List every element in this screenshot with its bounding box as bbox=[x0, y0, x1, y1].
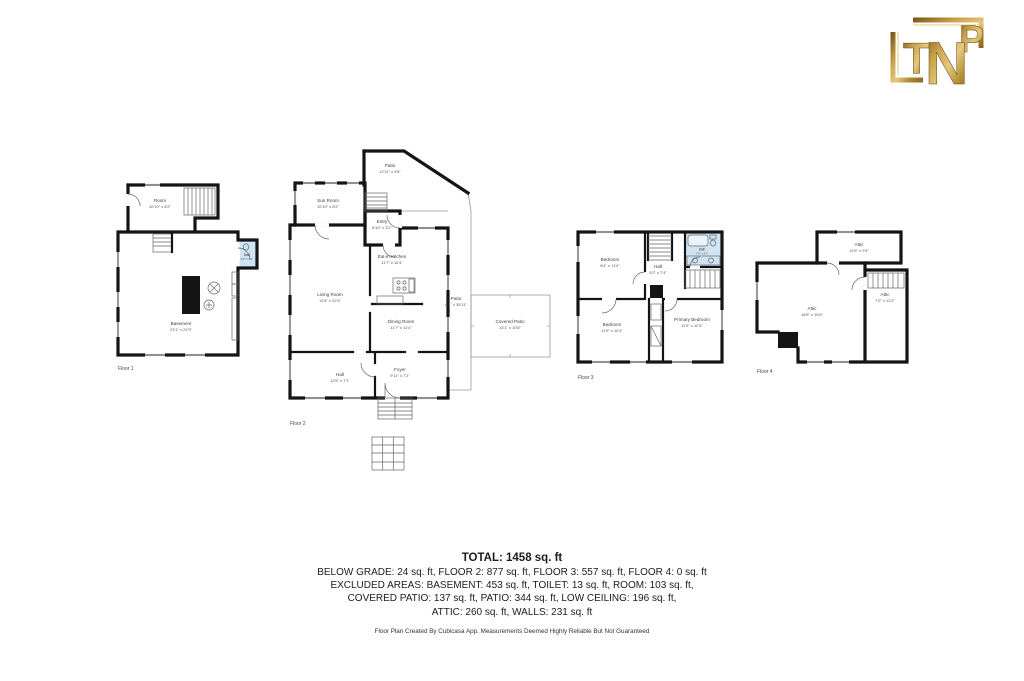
room-name-label: Bedroom bbox=[601, 257, 620, 262]
room-dims-label: 12'5" x 7'1" bbox=[330, 378, 350, 383]
hall-closets bbox=[651, 304, 661, 346]
floor-1-plan: Room 10'10" x 8'2" Bath 3'4" x 4'1" Base… bbox=[115, 172, 265, 377]
area-summary-line: BELOW GRADE: 24 sq. ft, FLOOR 2: 877 sq.… bbox=[0, 566, 1024, 579]
area-summary-line: EXCLUDED AREAS: BASEMENT: 453 sq. ft, TO… bbox=[0, 579, 1024, 592]
room-dims-label: 7'0" x 12'2" bbox=[875, 298, 895, 303]
area-summary-line: ATTIC: 260 sq. ft, WALLS: 231 sq. ft bbox=[0, 606, 1024, 619]
room-dims-label: 8'4" x 11'4" bbox=[600, 263, 620, 268]
room-dims-label: 11'7" x 10'4" bbox=[381, 260, 403, 265]
room-name-label: Basement bbox=[171, 321, 192, 326]
chimney-block bbox=[650, 285, 663, 298]
floor-label: Floor 3 bbox=[578, 375, 594, 381]
room-name-label: Eat-in Kitchen bbox=[378, 254, 407, 259]
room-name-label: Attic bbox=[881, 292, 891, 297]
chimney-block bbox=[778, 332, 798, 348]
logo-letter-n: N bbox=[925, 30, 968, 94]
room-name-label: Attic bbox=[808, 306, 818, 311]
room-name-label: Room bbox=[154, 198, 166, 203]
kitchen-appliances-icon bbox=[377, 278, 415, 304]
floor-2-walls bbox=[290, 151, 468, 398]
floor-4-plan: Attic 14'5" x 9'4" Attic 18'8" x 16'6" A… bbox=[752, 222, 910, 380]
floor-2-patio-outline bbox=[364, 185, 550, 390]
floor-label: Floor 4 bbox=[757, 369, 773, 375]
room-name-label: Patio bbox=[385, 163, 396, 168]
room-name-label: Living Room bbox=[317, 292, 343, 297]
room-dims-label: 11'7" x 11'4" bbox=[390, 325, 412, 330]
room-dims-label: 13'4" x 22'4" bbox=[319, 298, 342, 303]
room-name-label: Bedroom bbox=[603, 322, 622, 327]
floor-1-door-arcs bbox=[128, 194, 250, 260]
floor-3-plan: Bedroom 8'4" x 11'4" Hall 9'2" x 7'4" Ba… bbox=[572, 222, 730, 387]
room-dims-label: 6'1" x 39'11" bbox=[445, 302, 467, 307]
floor-4-stairs-icon bbox=[868, 273, 904, 288]
room-dims-label: 10'10" x 8'2" bbox=[149, 204, 172, 209]
room-dims-label: 14'5" x 9'4" bbox=[849, 248, 869, 253]
tnp-logo: T P N bbox=[883, 10, 1001, 94]
room-dims-label: 13'1" x 10'6" bbox=[499, 325, 522, 330]
floor-label: Floor 2 bbox=[290, 421, 306, 427]
room-dims-label: 10'10" x 8'2" bbox=[317, 204, 340, 209]
floor-4-door-arcs bbox=[827, 263, 865, 290]
room-dims-label: 9'11" x 7'2" bbox=[390, 373, 410, 378]
room-name-label: Patio bbox=[451, 296, 462, 301]
total-area-label: TOTAL: 1458 sq. ft bbox=[0, 552, 1024, 564]
room-name-label: Hall bbox=[654, 264, 662, 269]
room-dims-label: 12'11" x 9'8" bbox=[379, 169, 401, 174]
floor-label: Floor 1 bbox=[118, 366, 134, 372]
room-name-label: Dining Room bbox=[388, 319, 415, 324]
room-dims-label: 3'4" x 4'1" bbox=[241, 257, 254, 261]
room-dims-label: 18'8" x 16'6" bbox=[801, 312, 824, 317]
room-dims-label: 23'1" x 21'9" bbox=[170, 327, 193, 332]
room-name-label: Sun Room bbox=[317, 198, 339, 203]
room-name-label: Entry bbox=[377, 219, 388, 224]
deck-steps-icon bbox=[372, 437, 404, 470]
room-name-label: Primary Bedroom bbox=[674, 317, 710, 322]
room-name-label: Foyer bbox=[394, 367, 406, 372]
floor-2-plan: Patio 12'11" x 9'8" Sun Room 10'10" x 8'… bbox=[285, 145, 560, 480]
room-name-label: Covered Patio bbox=[495, 319, 525, 324]
chimney-block bbox=[182, 276, 200, 314]
utility-symbols-icon bbox=[204, 282, 220, 310]
area-summary: TOTAL: 1458 sq. ft BELOW GRADE: 24 sq. f… bbox=[0, 552, 1024, 635]
area-summary-line: COVERED PATIO: 137 sq. ft, PATIO: 344 sq… bbox=[0, 592, 1024, 605]
room-dims-label: 8'10" x 3'2" bbox=[372, 225, 392, 230]
room-dims-label: 9'2" x 7'4" bbox=[649, 270, 667, 275]
room-dims-label: 11'9" x 12'4" bbox=[681, 323, 703, 328]
room-name-label: Hall bbox=[336, 372, 344, 377]
floor-plan-page: T P N bbox=[0, 0, 1024, 681]
floor-2-door-arcs bbox=[315, 215, 400, 398]
room-name-label: Attic bbox=[855, 242, 865, 247]
disclaimer-text: Floor Plan Created By Cubicasa App. Meas… bbox=[0, 628, 1024, 635]
room-dims-label: 7'9" x 5'3" bbox=[696, 252, 709, 256]
room-dims-label: 11'9" x 10'4" bbox=[601, 328, 623, 333]
